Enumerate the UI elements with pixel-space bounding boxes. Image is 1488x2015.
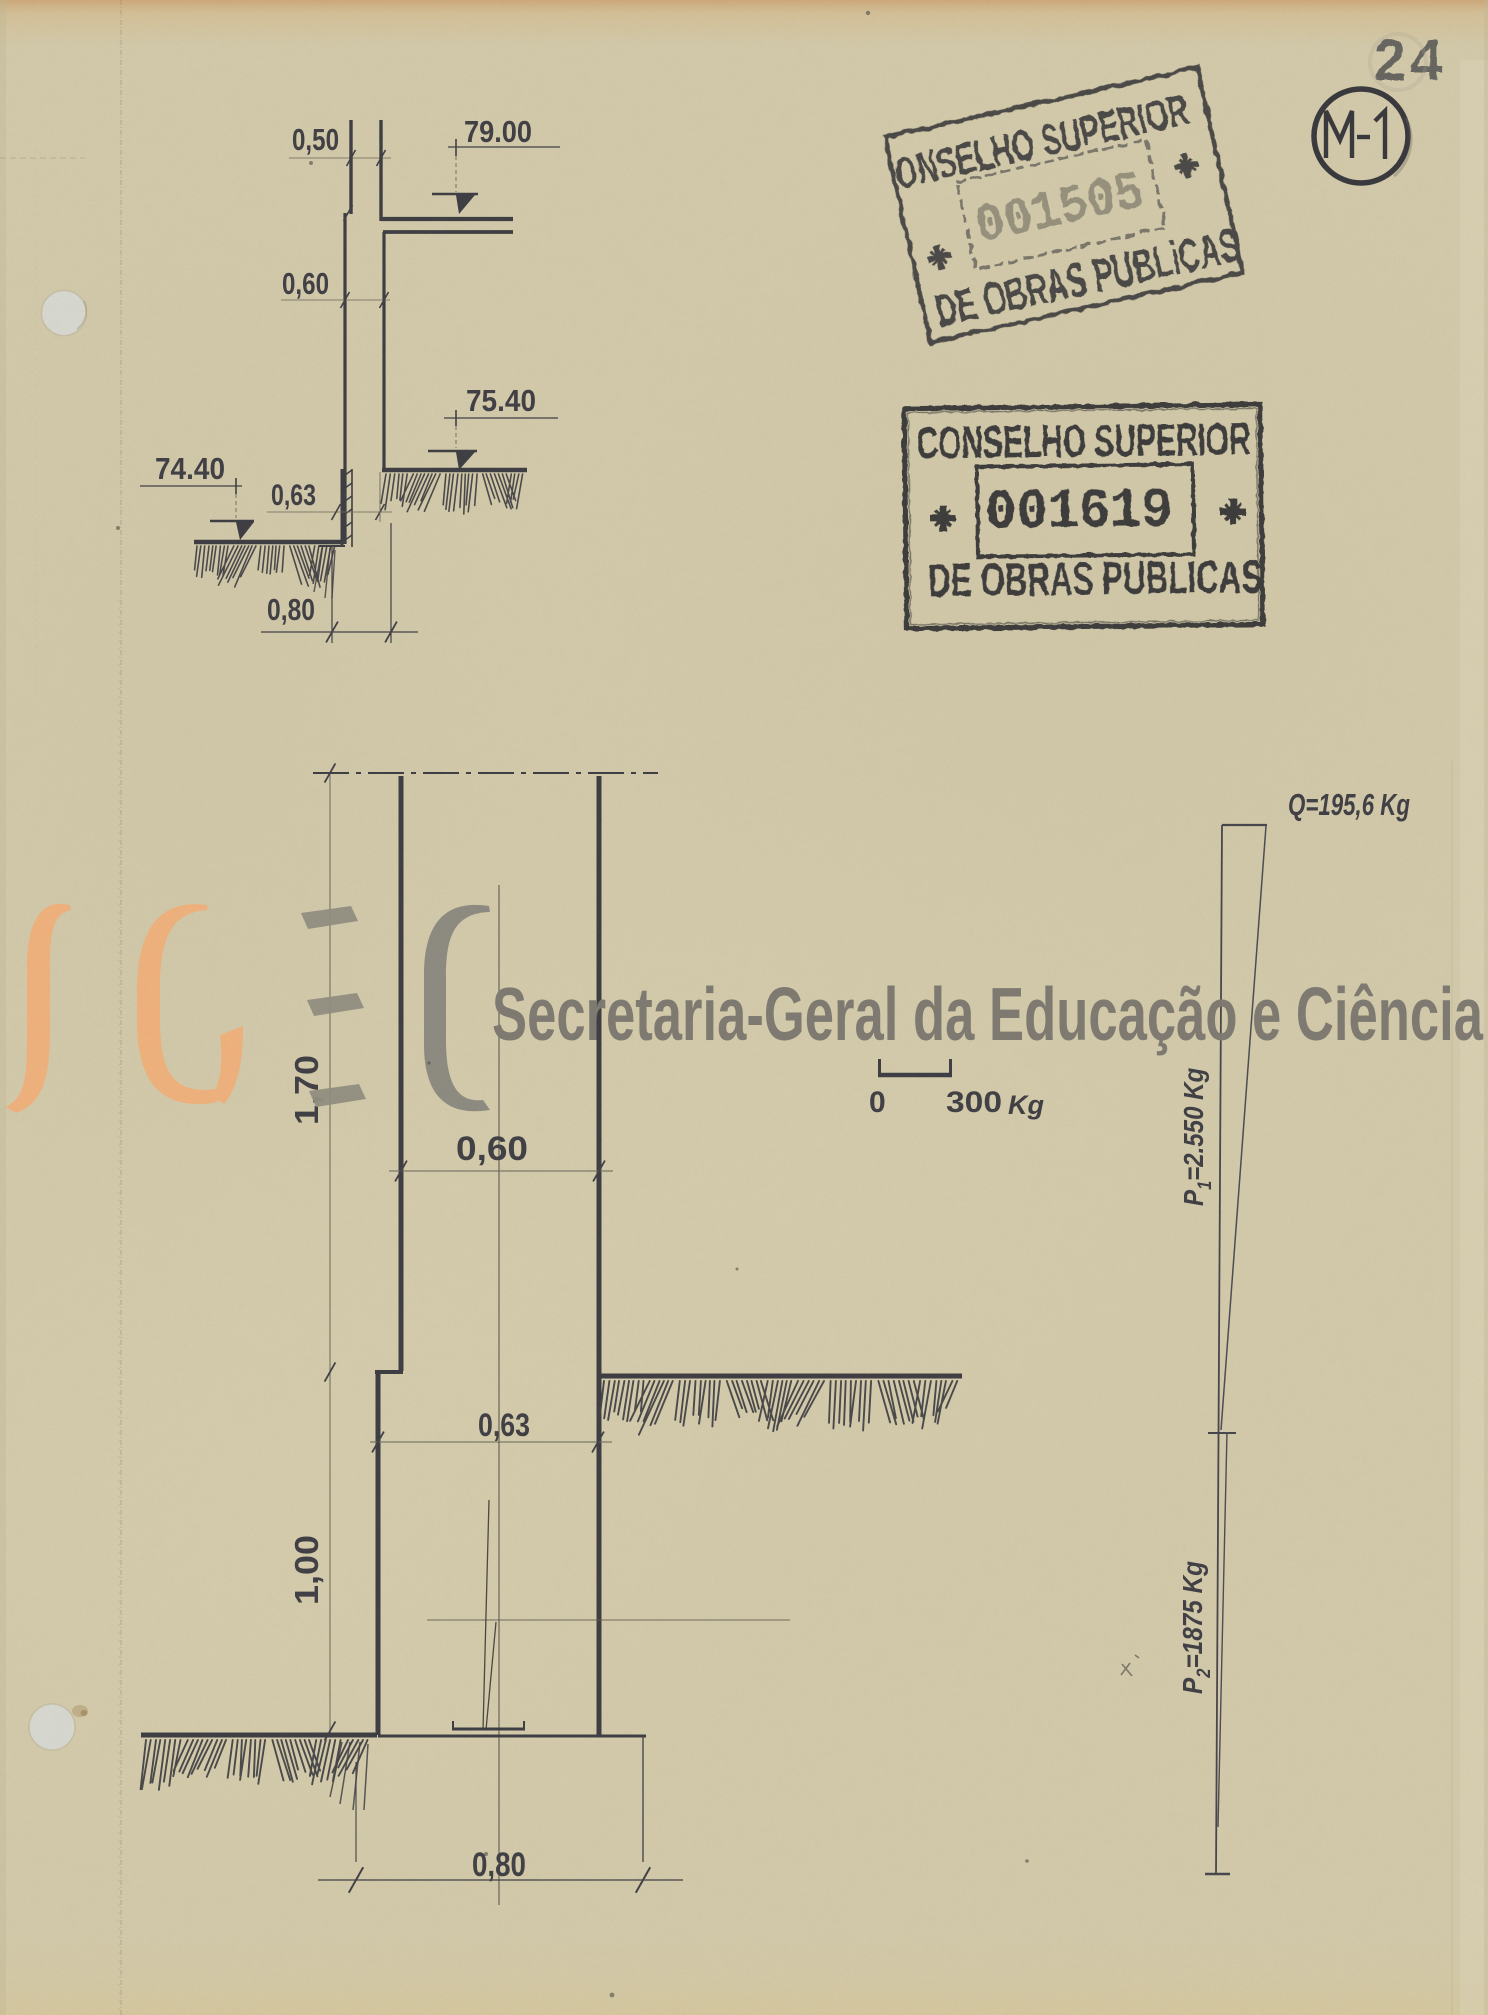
svg-text:CONSELHO SUPERIOR: CONSELHO SUPERIOR <box>916 413 1251 468</box>
svg-text:0,63: 0,63 <box>478 1407 530 1443</box>
svg-text:DE OBRAS PUBLICAS: DE OBRAS PUBLICAS <box>928 550 1263 606</box>
svg-text:0,60: 0,60 <box>456 1130 528 1168</box>
svg-text:0,50: 0,50 <box>292 122 339 157</box>
svg-text:0: 0 <box>869 1086 886 1119</box>
svg-text:75.40: 75.40 <box>466 383 536 418</box>
svg-text:0,80: 0,80 <box>267 592 315 627</box>
svg-text:1,00: 1,00 <box>288 1535 325 1605</box>
svg-text:300: 300 <box>946 1086 1002 1119</box>
svg-text:74.40: 74.40 <box>155 451 225 486</box>
svg-text:Kg: Kg <box>1008 1090 1044 1120</box>
svg-text:Secretaria-Geral da Educação e: Secretaria-Geral da Educação e Ciência <box>492 972 1484 1056</box>
svg-text:0,63: 0,63 <box>271 479 316 512</box>
svg-text:0,80: 0,80 <box>472 1846 526 1884</box>
svg-text:79.00: 79.00 <box>464 114 532 149</box>
svg-text:001619: 001619 <box>985 478 1173 544</box>
svg-text:Q=195,6 Kg: Q=195,6 Kg <box>1288 787 1410 822</box>
svg-text:0,60: 0,60 <box>282 266 329 301</box>
